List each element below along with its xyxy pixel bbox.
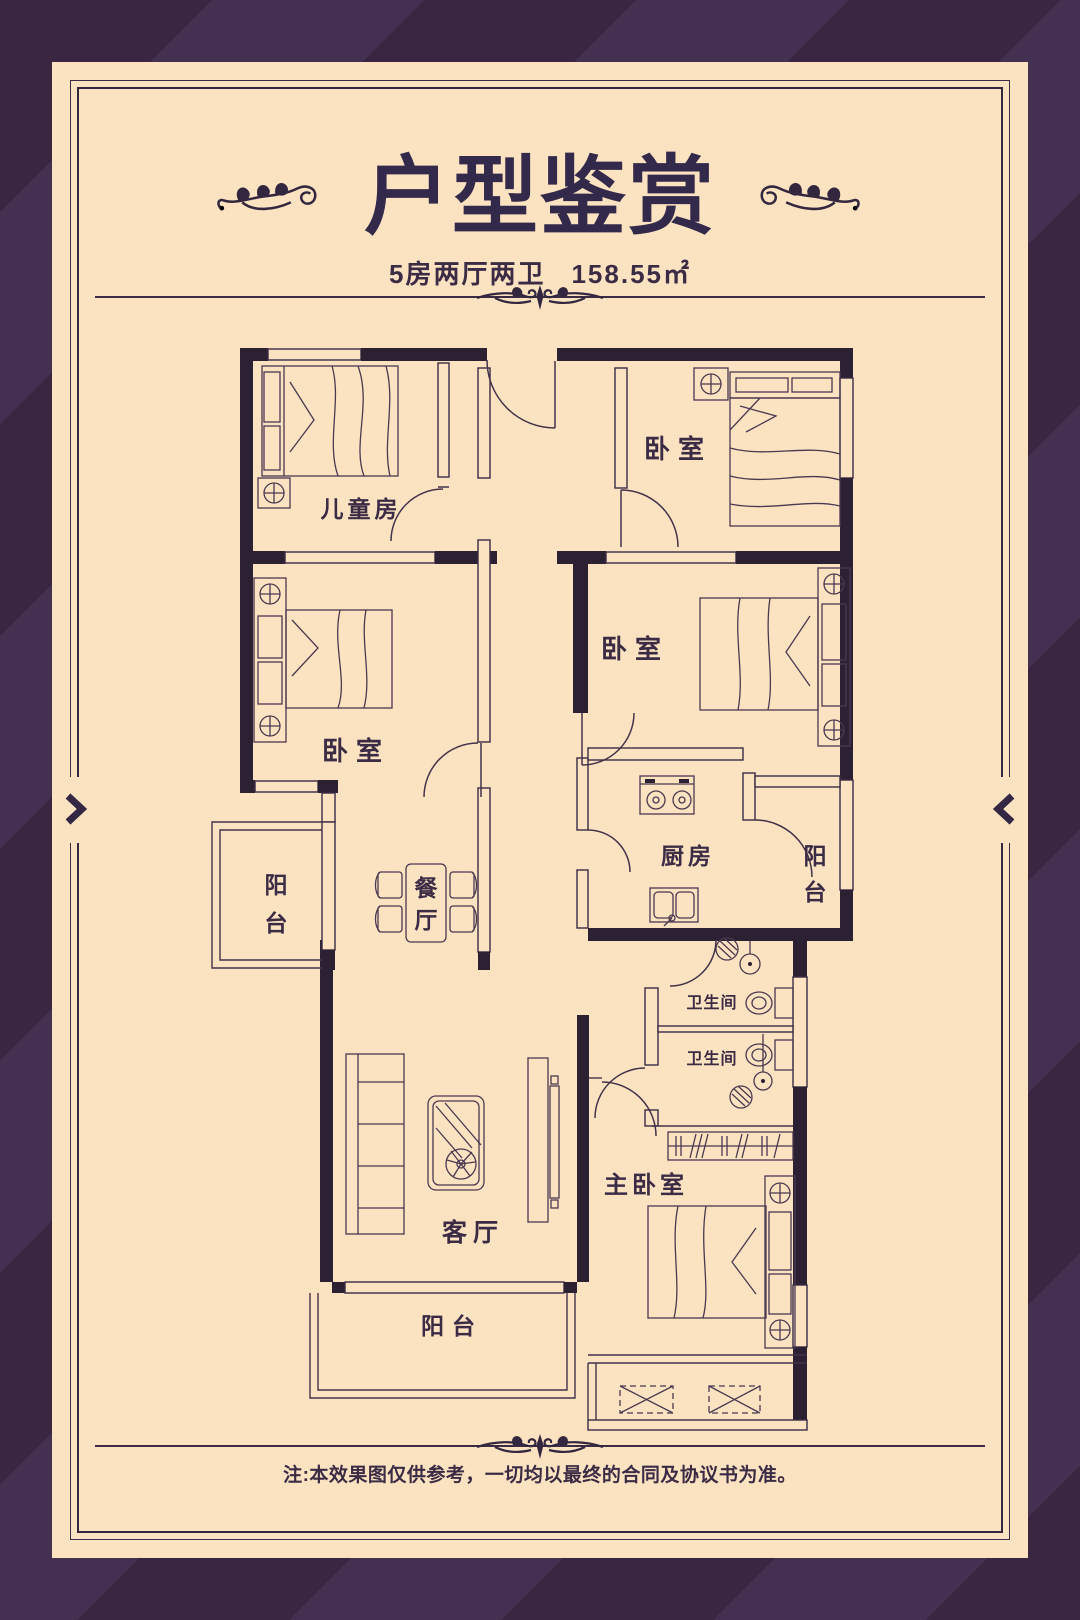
- room-balcony-right: 阳 台: [804, 843, 827, 905]
- poster-card: 户型鉴赏 5房两厅两卫158.55㎡: [52, 62, 1028, 1558]
- label-living-room: 客厅: [442, 1218, 504, 1247]
- chevron-right-icon[interactable]: [63, 793, 87, 825]
- label-balcony-left-char1: 阳: [265, 872, 288, 898]
- label-balcony-bottom: 阳台: [421, 1313, 483, 1339]
- room-balcony-bottom: 阳台: [421, 1313, 483, 1339]
- label-bedroom-top-right: 卧室: [644, 434, 712, 464]
- room-living: 客厅: [346, 1054, 559, 1247]
- room-balcony-left: 阳 台: [265, 872, 288, 936]
- label-bathroom-lower: 卫生间: [686, 1049, 737, 1068]
- room-bathroom-upper: 卫生间: [686, 938, 793, 1018]
- room-children: 儿童房: [258, 366, 402, 522]
- label-balcony-left-char2: 台: [265, 910, 288, 936]
- room-dining: 餐 厅: [376, 864, 477, 942]
- label-kitchen: 厨房: [661, 843, 715, 869]
- label-bathroom-upper: 卫生间: [686, 993, 737, 1012]
- room-master-bedroom: 主卧室: [604, 1132, 795, 1413]
- label-master-bedroom: 主卧室: [604, 1171, 688, 1199]
- label-bedroom-mid-left: 卧室: [322, 736, 390, 766]
- room-kitchen: 厨房: [640, 776, 715, 926]
- disclaimer-note: 注:本效果图仅供参考，一切均以最终的合同及协议书为准。: [52, 1460, 1028, 1487]
- poster-background: 户型鉴赏 5房两厅两卫158.55㎡: [0, 0, 1080, 1620]
- room-bedroom-top-right: 卧室: [644, 368, 840, 526]
- room-bedroom-mid-left: 卧室: [254, 578, 392, 766]
- label-children-room: 儿童房: [321, 496, 402, 522]
- chevron-left-icon[interactable]: [993, 793, 1017, 825]
- label-dining-char1: 餐: [415, 875, 439, 901]
- label-bedroom-mid-right: 卧室: [601, 634, 669, 664]
- page-title: 户型鉴赏: [52, 150, 1028, 245]
- room-bathroom-lower: 卫生间: [686, 1034, 793, 1108]
- label-dining-char2: 厅: [415, 907, 438, 933]
- floorplan: 儿童房 卧室: [195, 340, 860, 1435]
- divider-ornament-icon: [475, 280, 605, 316]
- balcony-outlines: [212, 822, 807, 1420]
- flourish-right-icon: [755, 173, 862, 222]
- label-balcony-right-char2: 台: [804, 879, 827, 905]
- room-bedroom-mid-right: 卧室: [601, 568, 850, 746]
- label-balcony-right-char1: 阳: [804, 843, 827, 869]
